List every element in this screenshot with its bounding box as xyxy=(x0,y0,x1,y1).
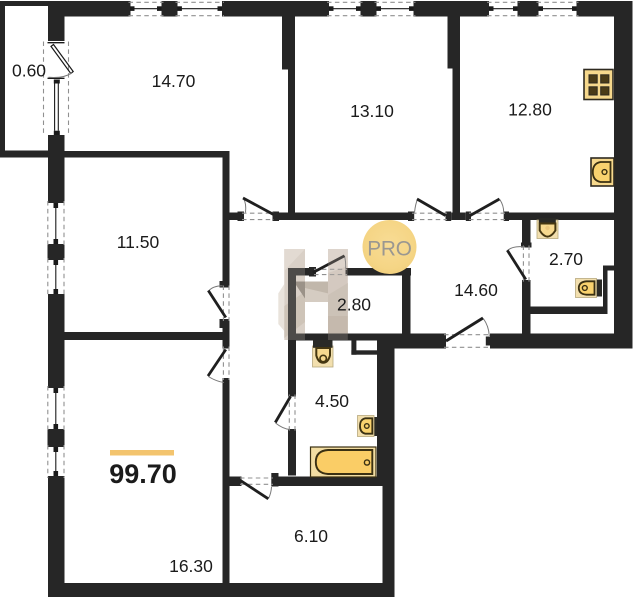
svg-text:6.10: 6.10 xyxy=(294,526,328,546)
svg-text:99.70: 99.70 xyxy=(109,459,177,489)
svg-text:16.30: 16.30 xyxy=(169,556,213,576)
svg-text:0.60: 0.60 xyxy=(12,61,46,81)
svg-text:2.70: 2.70 xyxy=(549,249,583,269)
svg-text:13.10: 13.10 xyxy=(350,101,394,121)
svg-text:11.50: 11.50 xyxy=(117,232,160,252)
svg-text:PRO: PRO xyxy=(367,237,411,260)
svg-text:4.50: 4.50 xyxy=(315,391,349,411)
svg-text:14.70: 14.70 xyxy=(152,71,196,91)
svg-text:14.60: 14.60 xyxy=(454,280,498,300)
svg-text:2.80: 2.80 xyxy=(337,295,371,315)
svg-text:12.80: 12.80 xyxy=(508,100,552,120)
